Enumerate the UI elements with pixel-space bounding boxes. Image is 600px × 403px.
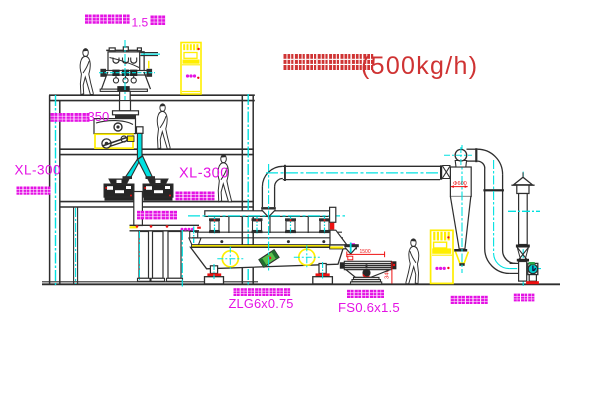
svg-text:1500: 1500 — [360, 249, 371, 255]
svg-text:XL-300: XL-300 — [15, 163, 62, 178]
svg-text:FS0.6x1.5: FS0.6x1.5 — [338, 300, 400, 315]
svg-text:XL-300: XL-300 — [179, 166, 229, 182]
svg-text:Φ600: Φ600 — [453, 181, 467, 187]
svg-text:1.5: 1.5 — [132, 16, 149, 30]
svg-text:350: 350 — [88, 109, 110, 124]
svg-text:ZLG6x0.75: ZLG6x0.75 — [229, 296, 294, 311]
svg-text:(500kg/h): (500kg/h) — [361, 52, 478, 80]
